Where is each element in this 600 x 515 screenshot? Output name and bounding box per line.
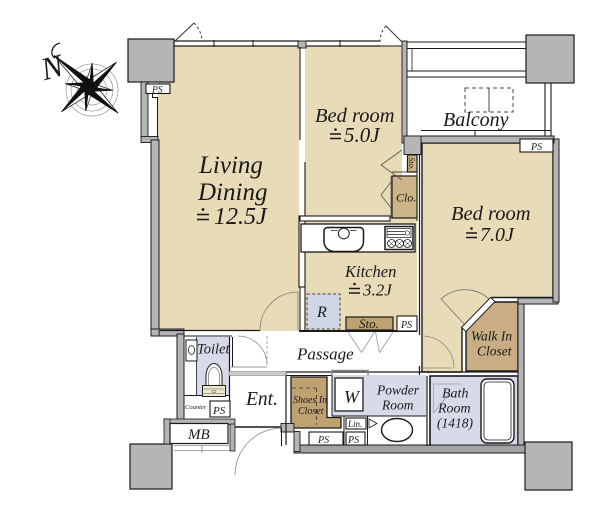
svg-text:7.0J: 7.0J <box>480 224 515 246</box>
svg-text:5.0J: 5.0J <box>344 123 381 147</box>
svg-text:PS: PS <box>530 142 542 153</box>
svg-text:Passage: Passage <box>296 345 354 364</box>
svg-text:PS: PS <box>212 405 226 417</box>
svg-text:Bath: Bath <box>442 387 468 402</box>
svg-text:Dining: Dining <box>197 179 267 206</box>
svg-text:Toilet: Toilet <box>197 342 230 358</box>
svg-text:(1418): (1418) <box>437 416 473 431</box>
svg-text:R: R <box>316 304 327 321</box>
svg-text:Ent.: Ent. <box>245 389 278 410</box>
svg-text:Bed room: Bed room <box>451 203 531 225</box>
svg-text:Powder: Powder <box>376 383 420 398</box>
svg-text:Walk In: Walk In <box>471 329 512 344</box>
svg-text:Closet: Closet <box>298 406 324 417</box>
svg-text:12.5J: 12.5J <box>214 204 268 230</box>
svg-text:MB: MB <box>187 427 210 443</box>
svg-text:Balcony: Balcony <box>443 109 509 131</box>
svg-text:3.2J: 3.2J <box>362 281 393 300</box>
svg-text:Room: Room <box>381 398 414 413</box>
svg-text:PS: PS <box>317 435 329 446</box>
svg-text:Kitchen: Kitchen <box>344 262 396 281</box>
svg-text:PS: PS <box>151 86 163 96</box>
svg-text:Closet: Closet <box>477 344 513 359</box>
svg-text:Sto.: Sto. <box>359 316 379 331</box>
svg-text:PS: PS <box>347 435 359 446</box>
svg-text:Clo.: Clo. <box>396 191 416 205</box>
svg-text:PS: PS <box>400 320 412 331</box>
svg-text:Room: Room <box>437 402 471 417</box>
svg-text:Sto.: Sto. <box>407 157 417 170</box>
svg-text:Shoes In: Shoes In <box>293 395 327 406</box>
svg-text:W: W <box>344 387 361 407</box>
svg-text:Lin.: Lin. <box>347 419 362 429</box>
svg-text:Counter: Counter <box>185 404 207 411</box>
svg-text:Living: Living <box>198 152 263 179</box>
